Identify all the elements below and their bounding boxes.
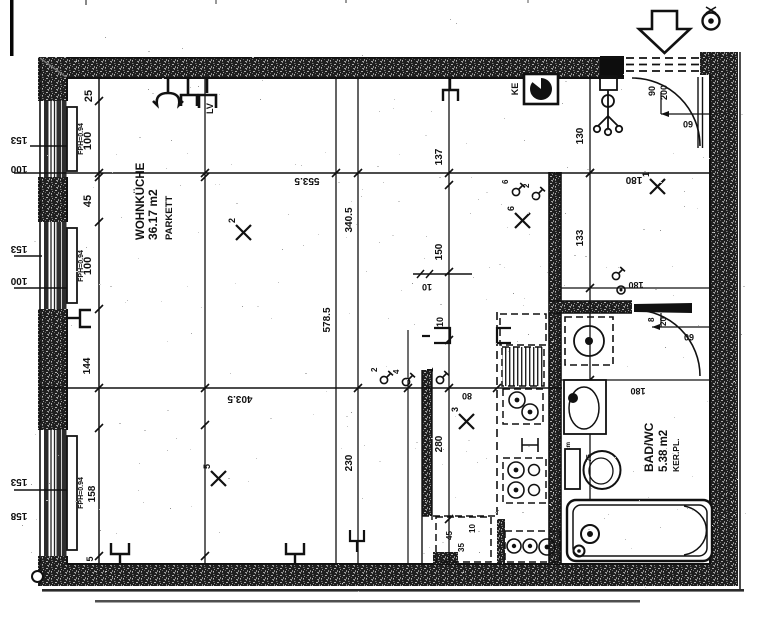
svg-text:FPH=0.94: FPH=0.94 [78, 477, 85, 509]
svg-text:10: 10 [468, 524, 477, 533]
svg-text:553.5: 553.5 [294, 175, 319, 186]
svg-text:10: 10 [422, 282, 432, 292]
svg-text:36.17 m2: 36.17 m2 [146, 189, 160, 240]
svg-text:130: 130 [575, 127, 586, 144]
svg-text:1: 1 [426, 367, 435, 372]
svg-text:60: 60 [683, 119, 693, 129]
svg-text:LV: LV [205, 103, 215, 114]
svg-text:133: 133 [575, 229, 586, 246]
svg-text:150: 150 [434, 243, 445, 260]
svg-text:75: 75 [586, 454, 593, 462]
svg-text:BAD/WC: BAD/WC [642, 422, 656, 472]
svg-text:158: 158 [10, 510, 27, 521]
svg-text:578.5: 578.5 [322, 307, 333, 332]
svg-text:2: 2 [227, 218, 237, 223]
svg-text:158: 158 [87, 485, 98, 502]
svg-text:25: 25 [83, 90, 95, 102]
svg-text:10: 10 [435, 317, 445, 327]
svg-text:3: 3 [450, 407, 460, 412]
svg-text:5: 5 [85, 556, 95, 561]
svg-text:2: 2 [522, 183, 531, 188]
svg-text:153: 153 [10, 134, 27, 145]
svg-text:6: 6 [506, 206, 516, 211]
svg-text:1: 1 [641, 172, 651, 177]
svg-text:90: 90 [647, 86, 657, 96]
svg-text:137: 137 [434, 148, 445, 165]
svg-text:KE: KE [510, 83, 520, 96]
svg-text:6: 6 [501, 179, 510, 184]
svg-text:4: 4 [392, 369, 401, 374]
svg-text:153: 153 [10, 476, 27, 487]
svg-text:100: 100 [10, 275, 27, 286]
svg-text:20: 20 [659, 317, 668, 326]
svg-text:60: 60 [684, 332, 694, 342]
svg-text:180: 180 [630, 386, 645, 396]
svg-text:2: 2 [370, 367, 379, 372]
svg-text:340.5: 340.5 [344, 207, 355, 232]
svg-text:230: 230 [344, 454, 355, 471]
svg-text:180: 180 [628, 280, 643, 290]
svg-text:5.38 m2: 5.38 m2 [658, 430, 670, 472]
svg-text:8: 8 [647, 317, 656, 322]
svg-text:180: 180 [625, 174, 642, 185]
svg-text:100: 100 [82, 257, 94, 275]
svg-text:KER.PL.: KER.PL. [671, 438, 681, 472]
svg-text:45: 45 [445, 531, 454, 540]
svg-text:153: 153 [10, 243, 27, 254]
svg-text:35: 35 [457, 543, 466, 552]
svg-text:80: 80 [462, 391, 472, 401]
svg-text:144: 144 [82, 357, 93, 374]
svg-text:100: 100 [82, 132, 94, 150]
svg-text:5: 5 [202, 464, 212, 469]
svg-text:PARKETT: PARKETT [164, 196, 175, 240]
svg-text:45: 45 [82, 195, 94, 207]
svg-text:403.5: 403.5 [227, 393, 252, 404]
